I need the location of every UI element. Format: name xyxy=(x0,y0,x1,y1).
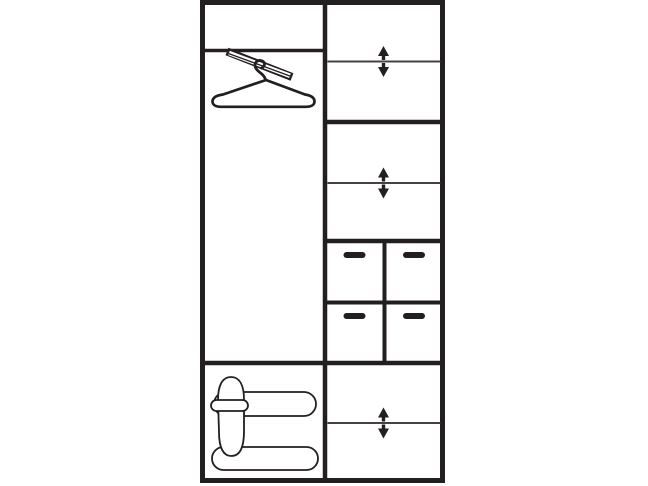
content-icons xyxy=(211,52,318,471)
drawer-handle xyxy=(403,313,425,319)
wardrobe-schematic-page xyxy=(0,0,648,486)
wardrobe-interior-diagram xyxy=(0,0,648,486)
down-arrow-icon xyxy=(378,425,389,439)
drawer-handle xyxy=(344,313,366,319)
up-arrow-icon xyxy=(378,168,389,182)
drawer-handle xyxy=(344,252,366,258)
up-arrow-icon xyxy=(378,46,389,60)
up-arrow-icon xyxy=(378,408,389,422)
drawer-handle xyxy=(403,252,425,258)
down-arrow-icon xyxy=(378,185,389,199)
clothes-hanger-icon xyxy=(213,52,315,107)
shoes-icon xyxy=(211,377,318,470)
down-arrow-icon xyxy=(378,63,389,77)
